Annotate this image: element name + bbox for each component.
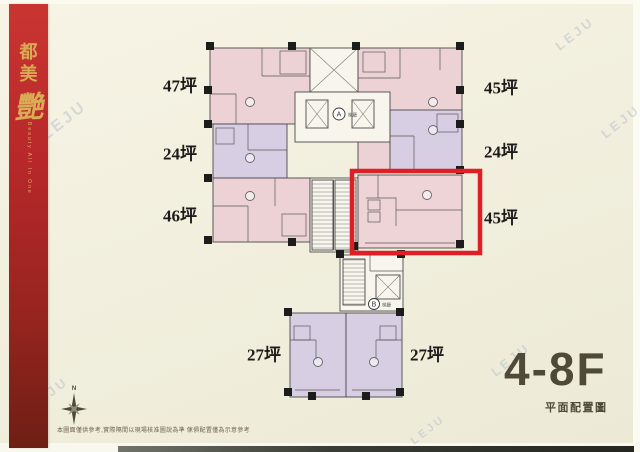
stair-flight: [343, 259, 365, 305]
stair-flight: [312, 180, 333, 250]
page-edge-right: [633, 0, 640, 452]
compass-north-label: N: [72, 386, 76, 392]
photo-shadow-strip: [118, 446, 634, 452]
unit-label-24-left: 24坪: [163, 140, 197, 165]
unit-label-45-top: 45坪: [484, 74, 518, 99]
core-b-letter: B: [372, 301, 377, 308]
disclaimer-text: 本圖面僅供參考,實際隔間以現場核准圖說為準 傢俱配置僅為示意參考: [57, 425, 250, 434]
brand-char-3: 艷: [8, 83, 50, 128]
unit-marker: [423, 191, 432, 200]
unit-marker: [429, 126, 438, 135]
brochure-page: LEJU LEJU LEJU LEJU LEJU LEJU 都 美 艷 Beau…: [0, 0, 640, 452]
unit-marker: [429, 98, 438, 107]
unit-24-right-area: [390, 110, 462, 172]
core-a-letter: A: [337, 112, 342, 119]
unit-label-27-right: 27坪: [410, 341, 444, 366]
unit-24-left-area: [213, 124, 287, 178]
unit-marker: [246, 98, 255, 107]
plan-caption: 平面配置圖: [545, 399, 608, 415]
unit-label-47: 47坪: [163, 72, 197, 97]
unit-27-left-area: [290, 313, 346, 397]
core-a-label: 梯廳: [348, 112, 357, 119]
unit-label-24-right: 24坪: [484, 138, 518, 163]
core-b-label: 梯廳: [382, 301, 391, 308]
unit-46-area: [213, 178, 310, 242]
unit-marker: [246, 192, 255, 201]
unit-label-46: 46坪: [163, 202, 197, 227]
compass-rose-icon: N: [54, 382, 94, 430]
floor-range-title: 4-8F: [504, 342, 607, 396]
unit-27-right-area: [346, 313, 402, 397]
page-edge-top: [0, 0, 640, 4]
brand-banner: 都 美 艷 Beauty All In One: [9, 4, 48, 448]
unit-label-45-highlight: 45坪: [484, 204, 518, 229]
unit-label-27-left: 27坪: [247, 341, 281, 366]
unit-marker: [370, 358, 379, 367]
unit-45-highlight-area: [358, 175, 462, 248]
unit-marker: [246, 154, 255, 163]
brand-subtitle: Beauty All In One: [26, 122, 32, 195]
unit-marker: [314, 358, 323, 367]
